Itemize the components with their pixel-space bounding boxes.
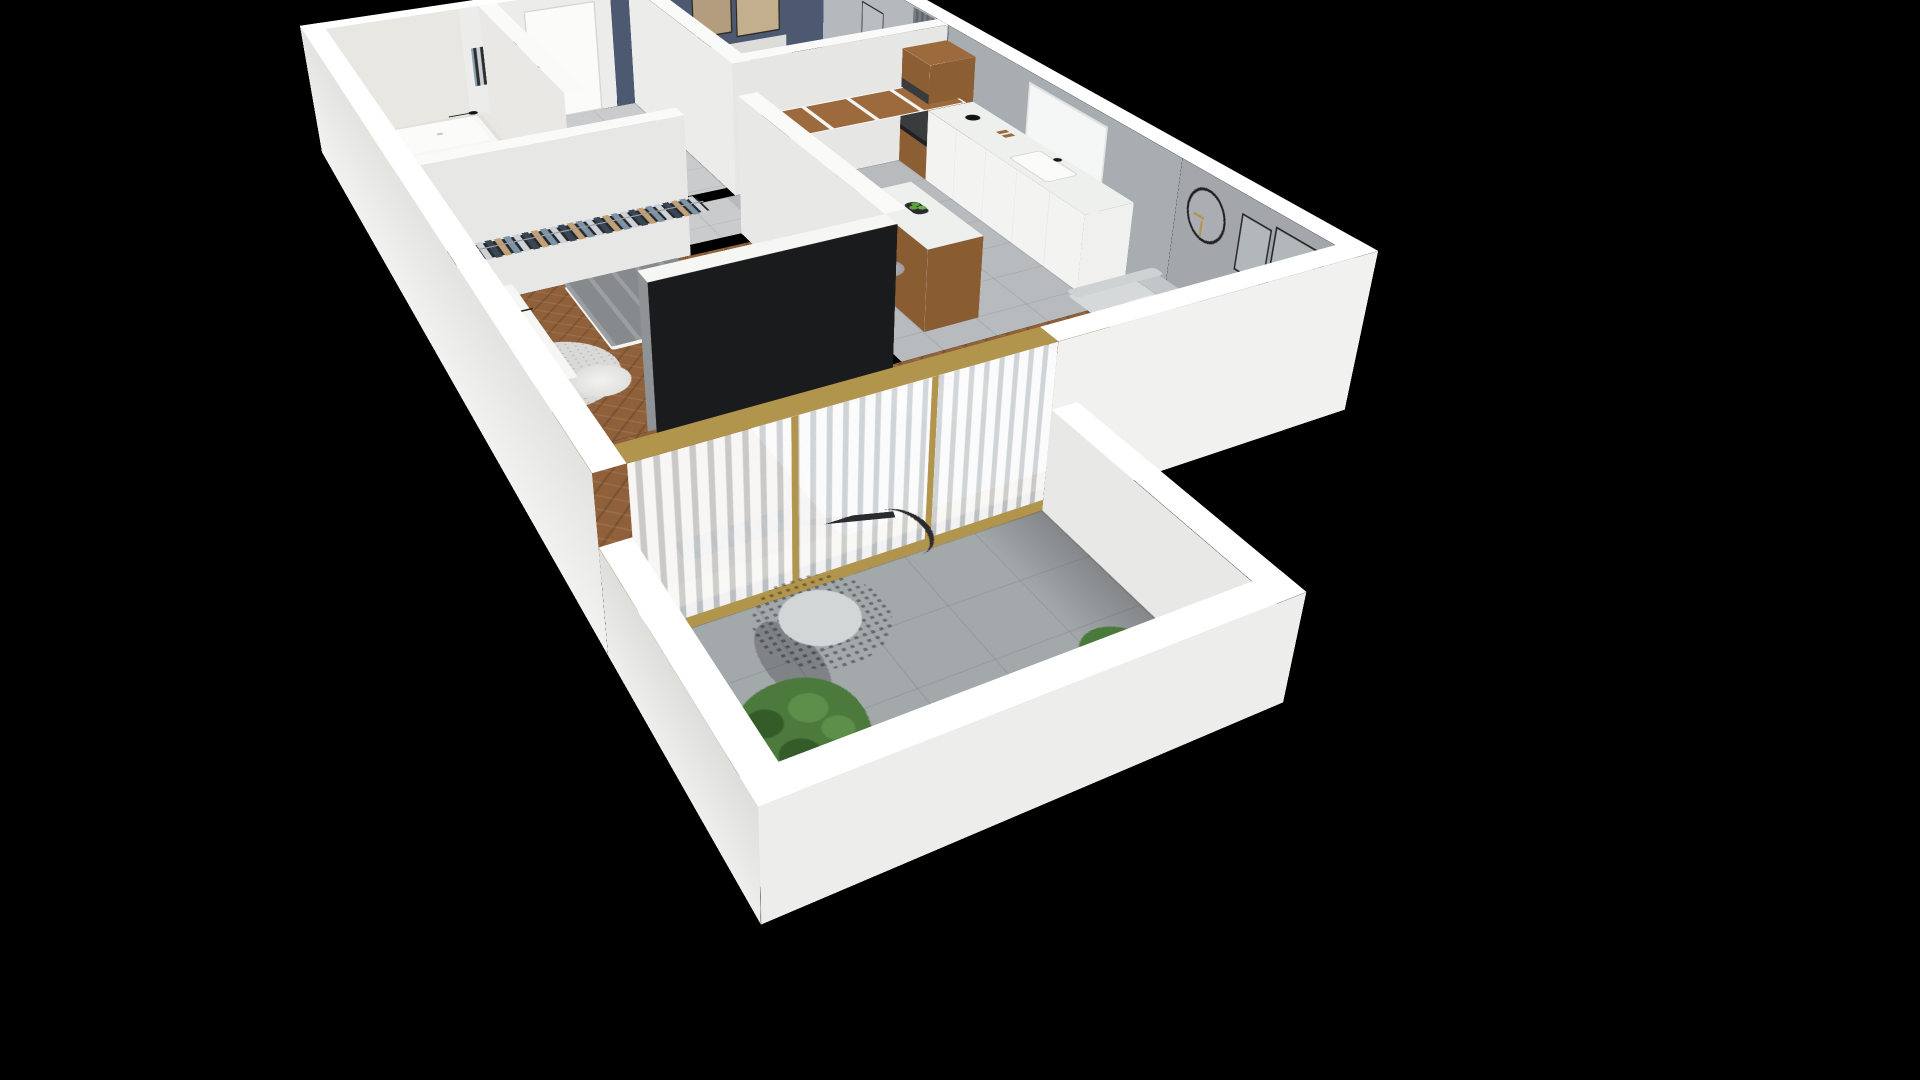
kitchen-island-side xyxy=(924,236,983,332)
apartment-3d-render xyxy=(0,0,1920,1080)
glazing-gold-mullion-2 xyxy=(791,415,799,594)
floor-plan xyxy=(322,60,1586,925)
render-world xyxy=(0,0,1920,1080)
